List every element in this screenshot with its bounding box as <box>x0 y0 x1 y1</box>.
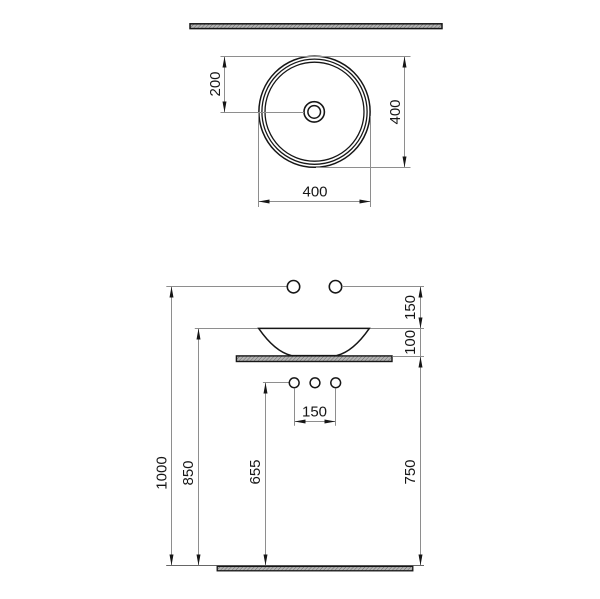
svg-text:655: 655 <box>247 459 264 484</box>
svg-text:400: 400 <box>387 99 404 124</box>
svg-text:150: 150 <box>402 295 419 320</box>
svg-text:100: 100 <box>402 330 419 355</box>
svg-text:400: 400 <box>302 184 327 201</box>
svg-text:1000: 1000 <box>153 456 170 489</box>
svg-text:200: 200 <box>207 71 224 96</box>
svg-text:750: 750 <box>402 459 419 484</box>
svg-text:850: 850 <box>180 460 197 485</box>
svg-text:150: 150 <box>302 404 327 421</box>
